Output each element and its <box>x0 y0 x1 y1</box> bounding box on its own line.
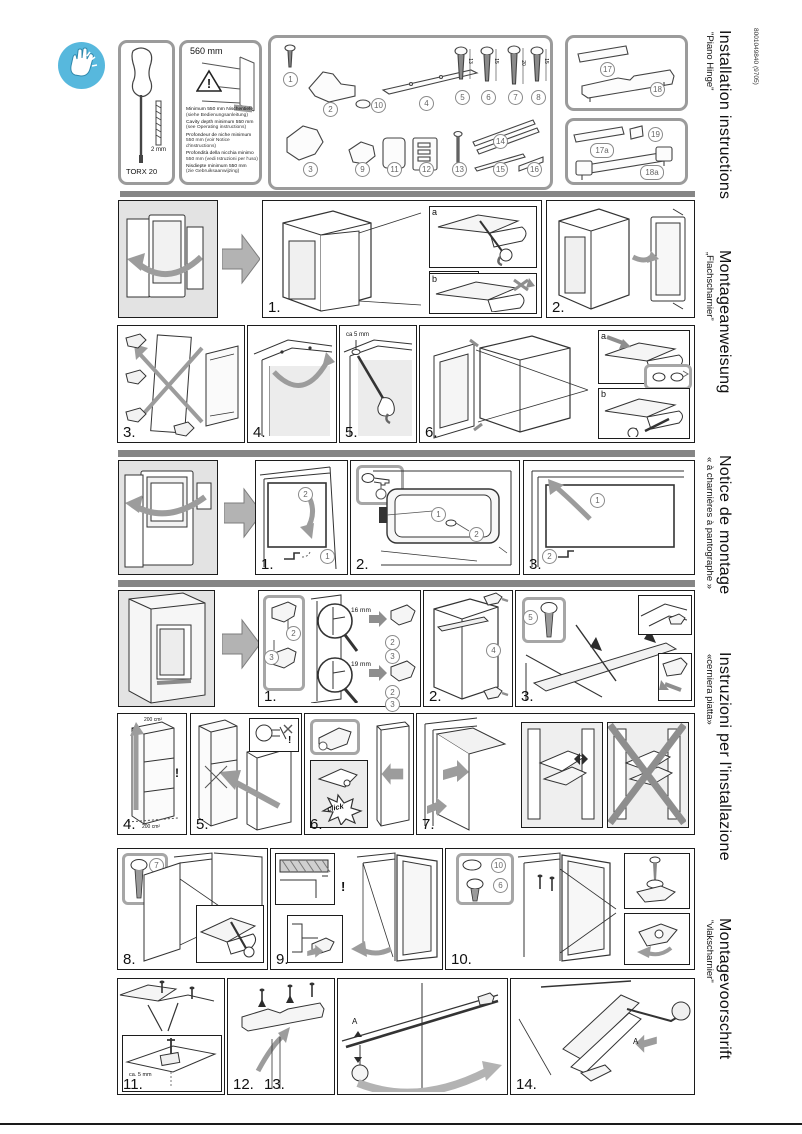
fr-step-1-label: 1. <box>261 556 274 573</box>
fr-step-2-label: 2. <box>356 556 369 573</box>
requirement-nl: Nisdiepte minimum 550 mm(zie Gebruiksaan… <box>186 164 261 175</box>
it-step-2-panel: 4 2. <box>423 590 513 707</box>
it-step-3-corner-inset <box>638 595 692 635</box>
fridge-in-niche-sketch <box>369 720 413 830</box>
fr-step3-ref-2: 2 <box>542 549 557 564</box>
screw-6-length: 15 <box>493 58 499 64</box>
step-4-label: 4. <box>123 816 136 833</box>
step-9-bracket-inset <box>287 915 343 963</box>
inset-b-label: b <box>601 389 606 399</box>
hinge-part-icon <box>313 722 357 752</box>
step-6-hinge-inset <box>310 719 360 755</box>
part-callout-17a: 17a <box>590 143 614 158</box>
hinge-arms-sketch <box>118 979 222 1037</box>
subtitle-nl: "vlakscharnier" <box>704 920 715 1059</box>
door-screws-sketch <box>510 849 620 967</box>
part-callout-9: 9 <box>355 162 370 177</box>
subtitle-fr: « à charnières à pantographe » <box>704 457 715 594</box>
it-step1-ref-3b: 3 <box>385 697 400 712</box>
inset-a-label: a <box>601 331 606 341</box>
page-bottom-rule <box>0 1123 802 1125</box>
torx-label: TORX 20 <box>126 167 157 176</box>
part-callout-2: 2 <box>323 102 338 117</box>
overview-panel-niche <box>118 590 215 707</box>
step-4-label: 4. <box>253 424 266 441</box>
part-callout-11: 11 <box>387 162 402 177</box>
section-divider-2 <box>118 450 695 457</box>
fr-step1-ref-1: 1 <box>320 549 335 564</box>
seal-strip-sketch <box>276 854 332 902</box>
step-7-panel: 7. <box>416 713 695 835</box>
fr-step1-ref-2: 2 <box>298 487 313 502</box>
part-callout-8: 8 <box>531 90 546 105</box>
part-callout-10: 10 <box>371 98 386 113</box>
part-callout-14: 14 <box>493 134 508 149</box>
part-callout-17: 17 <box>600 62 615 77</box>
screw-5-length: 13 <box>467 58 473 64</box>
title-it: Instruzioni per l'installazione <box>715 652 733 861</box>
flow-arrow-row1 <box>222 233 260 285</box>
part-callout-19: 19 <box>648 127 663 142</box>
section-divider-3 <box>118 580 695 587</box>
title-de: Montageanweisung <box>715 250 733 394</box>
part-callout-13: 13 <box>452 162 467 177</box>
cavity-panel: 560 mm ! Minimum 550 mm Nischentiefe(sie… <box>179 40 262 185</box>
lang-title-de: Montageanweisung „Flachscharnier” <box>704 250 733 394</box>
plug-warning: ! <box>288 735 291 746</box>
gloves-badge <box>58 42 105 89</box>
lang-title-en: Installation instructions "Piano Hinge" <box>704 30 733 199</box>
fr-step-3-label: 3. <box>529 556 542 573</box>
hinge-detail-a-sketch <box>430 207 535 266</box>
step-5-plug-inset: ! <box>249 718 299 752</box>
svg-text:!: ! <box>207 76 211 91</box>
it-step-1-bracket-inset: 2 3 <box>263 595 305 691</box>
hinge-screw-sketch <box>197 906 261 960</box>
step-8-panel: 7 8. <box>117 848 268 970</box>
requirement-it: Profondità della nicchia minimo550 mm (v… <box>186 151 261 162</box>
step-7-wrong-inset <box>607 722 689 828</box>
door-hinge-removal-sketch <box>118 326 243 440</box>
part-callout-7: 7 <box>508 90 523 105</box>
fr-step-3-panel: 1 2 3. <box>523 460 695 575</box>
rail-gauge-sketch <box>338 979 505 1092</box>
lang-title-it: Instruzioni per l'installazione «cernier… <box>704 652 733 861</box>
step-9-seal-inset <box>275 853 335 905</box>
latch-detail-sketch <box>659 654 689 698</box>
step-13-label: 13. <box>264 1076 285 1093</box>
screwdriver-adjust-sketch <box>340 326 415 440</box>
pivot-pin-sketch <box>625 854 687 906</box>
step-8-label: 8. <box>123 951 136 968</box>
hinge-engage-b-sketch <box>599 389 688 437</box>
subtitle-it: «cerniera piatta» <box>704 654 715 861</box>
part-callout-6: 6 <box>481 90 496 105</box>
hinge-gap-correct-sketch <box>522 723 600 825</box>
it-step1-dim-19: 19 mm <box>351 661 371 668</box>
step-1-panel: a ✓ ✗ b 1. <box>262 200 542 318</box>
it-step-3-label: 3. <box>521 688 534 705</box>
step-7-correct-inset <box>521 722 603 828</box>
step-10-ref-6: 6 <box>493 878 508 893</box>
step-14-dim-a: A <box>633 1037 638 1046</box>
fridge-door-removed-sketch <box>547 201 693 315</box>
title-nl: Montagevoorschrift <box>715 918 733 1059</box>
bracket-rotate-sketch <box>625 914 687 962</box>
part-callout-16: 16 <box>527 162 542 177</box>
flow-arrow-row4 <box>222 618 260 670</box>
inset-a-label: a <box>432 207 437 217</box>
it-step1-ref-2a: 2 <box>385 635 400 650</box>
slot-plate-sketch <box>647 367 689 387</box>
part-callout-18a: 18a <box>640 165 664 180</box>
lang-title-fr: Notice de montage « à charnières à panto… <box>704 455 733 594</box>
torx-screwdriver-icon <box>121 43 171 181</box>
title-en: Installation instructions <box>715 30 733 199</box>
step-4-panel: 4. <box>247 325 337 443</box>
step-9-panel: ! 9. <box>270 848 443 970</box>
step-1-label: 1. <box>268 299 281 316</box>
accessory-sketch-bottom <box>568 121 683 180</box>
requirement-en: Cavity depth minimum 550 mm(see Operatin… <box>186 120 261 131</box>
step-5-label: 5. <box>345 424 358 441</box>
it-step2-ref-4: 4 <box>486 643 501 658</box>
fr-step2-ref-1: 1 <box>431 507 446 522</box>
step-12-13-panel: 12. 13. <box>227 978 335 1095</box>
screw-7-length: 20 <box>520 60 526 66</box>
step-7-label: 7. <box>422 816 435 833</box>
screw-8-length: 15 <box>543 58 549 64</box>
gauge-check-sketch <box>511 979 692 1092</box>
gloves-icon <box>58 42 105 89</box>
subtitle-de: „Flachscharnier” <box>704 252 715 394</box>
inset-b-label: b <box>432 274 437 284</box>
step-9-warning: ! <box>341 879 345 894</box>
step-6-slot-inset <box>644 364 692 390</box>
step-6-click-label: 6. <box>310 816 323 833</box>
step-1-inset-a: a <box>429 206 537 268</box>
brackets-icon <box>266 598 302 688</box>
niche-sketch <box>119 591 213 705</box>
part-callout-3: 3 <box>303 162 318 177</box>
part-callout-5: 5 <box>455 90 470 105</box>
step-10-parts-inset: 10 6 <box>456 853 514 905</box>
step-6-panel: a b 6. <box>419 325 695 443</box>
requirement-de: Minimum 550 mm Nischentiefe(siehe Bedien… <box>186 107 261 118</box>
vent-warning: ! <box>175 766 179 780</box>
freezer-flap-sketch <box>119 461 216 573</box>
hinge-detail-b-sketch <box>430 274 535 312</box>
step-10-label: 10. <box>451 951 472 968</box>
step-8-hinge-inset <box>196 905 264 963</box>
it-step1-dim-16: 16 mm <box>351 607 371 614</box>
accessory-sketch-top <box>568 38 683 106</box>
subtitle-en: "Piano Hinge" <box>704 32 715 199</box>
step-3-label: 3. <box>123 424 136 441</box>
it-step-3-bottom-inset <box>658 653 692 701</box>
step-6-click-panel: click 6. <box>304 713 414 835</box>
step-10-rotate-inset <box>624 913 690 965</box>
it-step1-inset-ref-2: 2 <box>286 626 301 641</box>
corner-detail-sketch <box>639 596 689 632</box>
tool-panel: 2 mm TORX 20 <box>118 40 175 185</box>
part-callout-15: 15 <box>493 162 508 177</box>
step-6-label: 6. <box>425 424 438 441</box>
it-step-2-label: 2. <box>429 688 442 705</box>
accessory-panel-bottom: 17a 19 18a <box>565 118 688 185</box>
dimension-a-label: A <box>352 1017 357 1026</box>
accessory-panel-top: 17 18 <box>565 35 688 111</box>
step-9-label: 9. <box>276 951 289 968</box>
requirement-fr: Profondeur de niche minimum550 mm (voir … <box>186 133 261 150</box>
step-10-ref-10: 10 <box>491 858 506 873</box>
instruction-sheet: 2 mm TORX 20 560 mm ! Minimum 550 mm Nis… <box>0 0 802 1134</box>
step-11-label: 11. <box>123 1076 143 1093</box>
step-4-vent-panel: 200 cm² ! 200 cm² 4. <box>117 713 187 835</box>
fr-step-2-panel: 1 2 2. <box>350 460 520 575</box>
fr-step2-ref-2: 2 <box>469 527 484 542</box>
door-swap-sketch <box>119 201 216 316</box>
part-callout-1: 1 <box>283 72 298 87</box>
step-6-inset-b: b <box>598 388 690 439</box>
it-step-3-panel: 5 3. <box>515 590 695 707</box>
it-step-1-panel: 2 3 16 mm 19 mm 2 3 2 3 1. <box>258 590 421 707</box>
bottom-bracket-sketch <box>288 916 340 960</box>
step-1-inset-b: b <box>429 273 537 314</box>
part-callout-4: 4 <box>419 96 434 111</box>
it-step-1-label: 1. <box>264 688 277 705</box>
hinge-gap-wrong-sketch <box>608 723 686 825</box>
lang-title-nl: Montagevoorschrift "vlakscharnier" <box>704 918 733 1059</box>
it-step1-ref-3a: 3 <box>385 649 400 664</box>
warning-triangle-icon: ! <box>196 69 222 93</box>
part-callout-18: 18 <box>650 82 665 97</box>
step-14-label: 14. <box>516 1076 537 1093</box>
door-closing-sketch <box>347 849 443 967</box>
part-callout-12: 12 <box>419 162 434 177</box>
step-10-panel: 10 6 10. <box>445 848 695 970</box>
cavity-requirements: Minimum 550 mm Nischentiefe(siehe Bedien… <box>186 107 261 175</box>
step-5-panel: ca 5 mm 5. <box>339 325 417 443</box>
step-14-panel: A 14. <box>510 978 695 1095</box>
seal-rotate-sketch <box>248 326 335 440</box>
parts-panel: 1 2 4 10 5 6 7 8 13 15 20 15 3 9 11 12 1… <box>268 35 553 190</box>
title-fr: Notice de montage <box>715 455 733 594</box>
overview-panel-door-swap <box>118 200 218 318</box>
bit-size-label: 2 mm <box>151 147 166 153</box>
step-11-panel: ca. 5 mm 11. <box>117 978 225 1095</box>
fridge-door-mounted-sketch <box>420 326 590 440</box>
step-a-rail-panel: A <box>337 978 508 1095</box>
it-step1-inset-ref-3: 3 <box>264 650 279 665</box>
fridge-open-door-sketch <box>263 201 423 315</box>
step-12-label: 12. <box>233 1076 254 1093</box>
step-5-slide-panel: ! 5. <box>190 713 302 835</box>
step-2-label: 2. <box>552 299 565 316</box>
vent-area-bottom: 200 cm² <box>142 824 160 830</box>
doc-code: 8001049840 (9705) <box>752 28 759 85</box>
step-2-panel: 2. <box>546 200 695 318</box>
overview-panel-freezer-flap <box>118 460 218 575</box>
section-divider-1 <box>120 191 695 197</box>
fr-step3-ref-1: 1 <box>590 493 605 508</box>
fr-step-1-panel: 2 1 1. <box>255 460 348 575</box>
step-10-pin-inset <box>624 853 690 909</box>
step-5-slide-label: 5. <box>196 816 209 833</box>
step-3-panel: 3. <box>117 325 245 443</box>
door-align-sketch <box>417 714 517 832</box>
